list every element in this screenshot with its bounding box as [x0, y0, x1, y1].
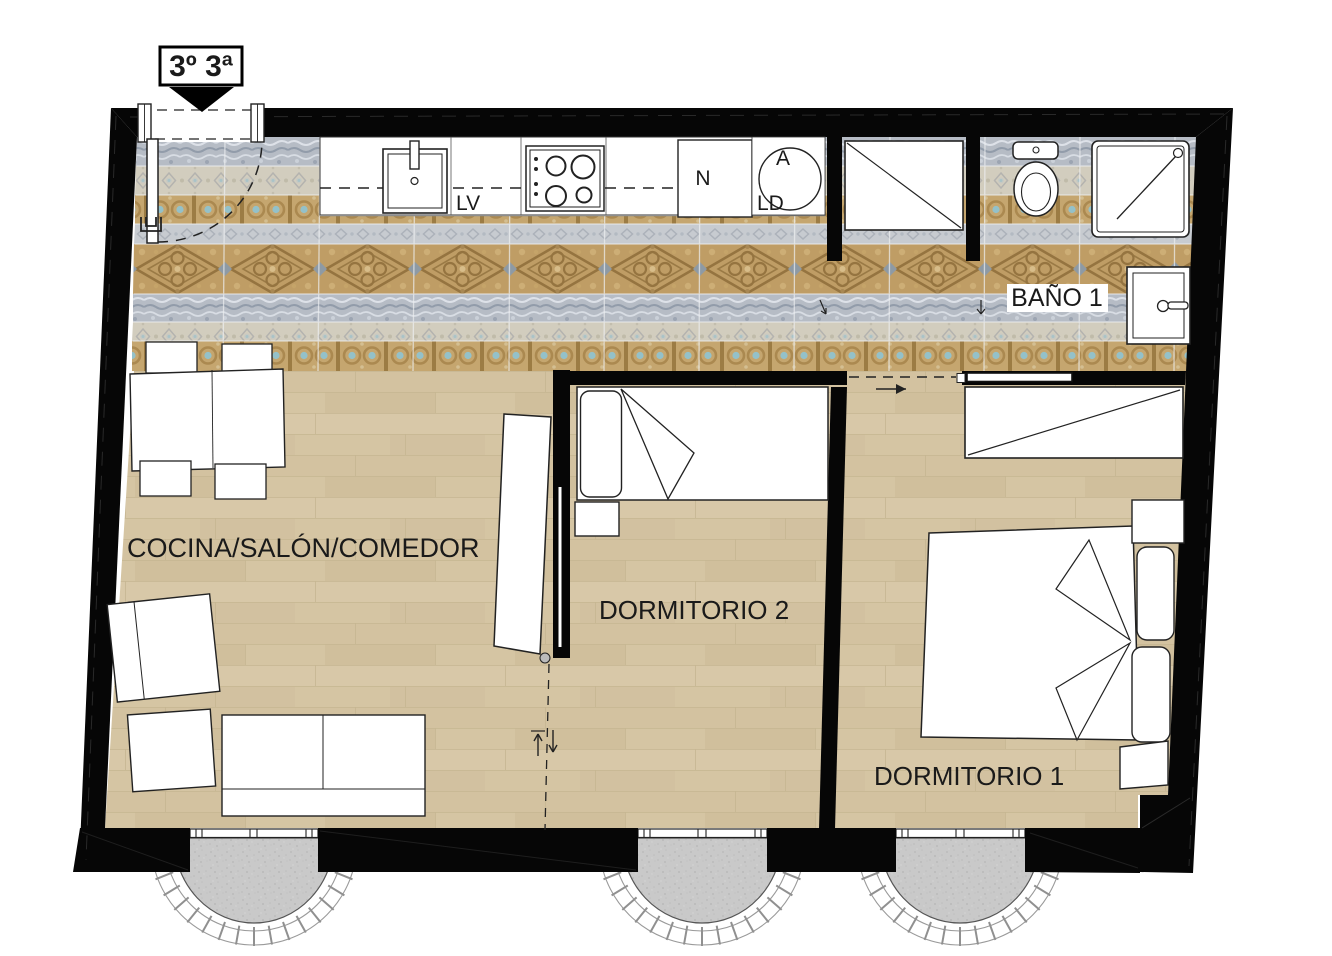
svg-text:LD: LD [757, 192, 784, 215]
svg-text:N: N [695, 167, 710, 190]
svg-text:DORMITORIO 1: DORMITORIO 1 [874, 761, 1064, 791]
svg-text:A: A [776, 147, 790, 170]
svg-text:LV: LV [456, 192, 480, 215]
svg-text:3º 3ª: 3º 3ª [169, 50, 234, 83]
svg-text:COCINA/SALÓN/COMEDOR: COCINA/SALÓN/COMEDOR [127, 532, 480, 563]
svg-text:DORMITORIO 2: DORMITORIO 2 [599, 595, 789, 625]
svg-text:BAÑO 1: BAÑO 1 [1011, 283, 1103, 312]
